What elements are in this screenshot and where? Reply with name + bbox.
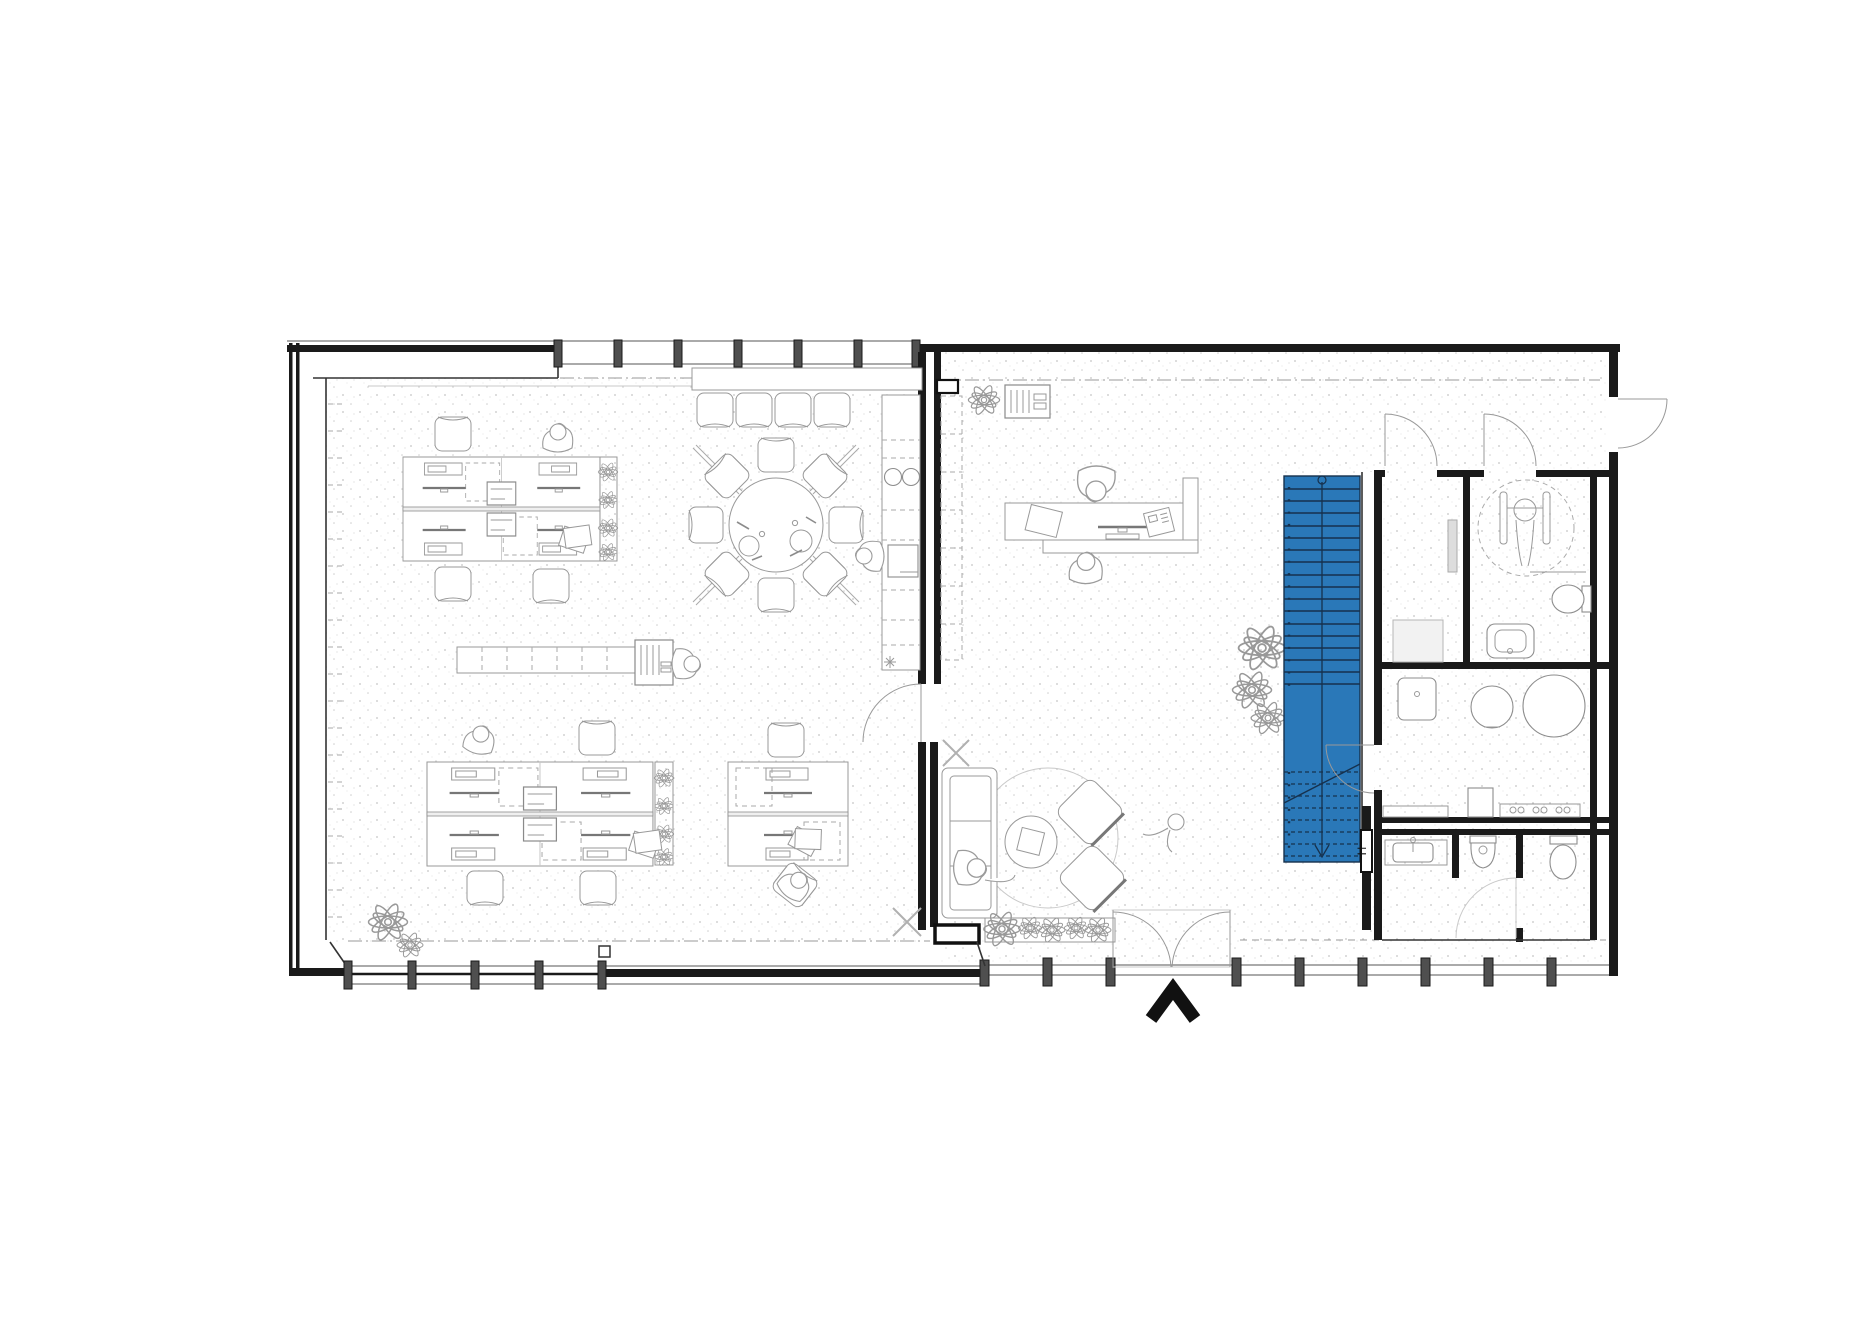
shaft-strip xyxy=(1598,470,1609,940)
boiler-small xyxy=(1471,686,1513,728)
exterior-side-door xyxy=(1618,399,1667,448)
stair-side-strip xyxy=(1362,472,1374,864)
entry-wall-stub xyxy=(935,925,979,943)
north-arrow xyxy=(1151,989,1195,1019)
floor-unit xyxy=(1468,788,1493,817)
desk-chair xyxy=(580,871,616,905)
washbasin xyxy=(1487,624,1534,658)
floor-plan-page: H xyxy=(0,0,1872,1324)
toilet xyxy=(1552,585,1591,613)
washbasin xyxy=(1398,678,1436,720)
desk-chair xyxy=(435,417,471,451)
door-label-h: H xyxy=(1355,847,1369,856)
copier-station xyxy=(1005,385,1050,418)
desk-chair xyxy=(467,871,503,905)
sink-bowl xyxy=(903,469,920,486)
desk-chair xyxy=(533,569,569,603)
coffee-table xyxy=(1005,816,1057,868)
desk-chair xyxy=(579,721,615,755)
boiler-large xyxy=(1523,675,1585,737)
floor-plan-drawing: H xyxy=(0,0,1872,1324)
toilet xyxy=(1550,836,1577,879)
round-meeting-table xyxy=(689,438,863,612)
shower-tray xyxy=(1393,620,1443,662)
sink-bowl xyxy=(885,469,902,486)
wall-panel xyxy=(1448,520,1457,572)
window-console xyxy=(692,368,922,390)
desk-chair xyxy=(768,723,804,757)
desk-chair xyxy=(435,567,471,601)
staircase-blue xyxy=(1284,472,1362,864)
